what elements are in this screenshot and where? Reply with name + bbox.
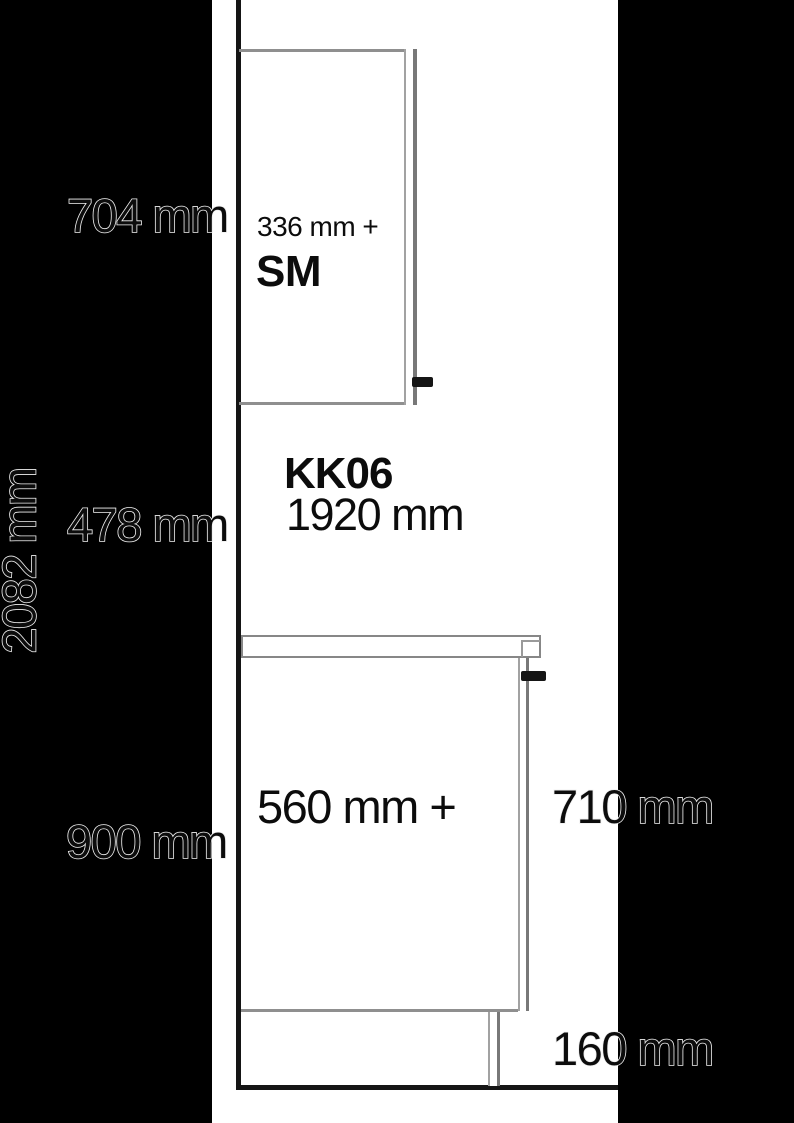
base-cabinet-bottom-edge bbox=[241, 1009, 518, 1012]
cabinet-dimension-diagram: 704 mm 478 mm 900 mm 2082 mm 336 mm + SM… bbox=[0, 0, 794, 1123]
total-height-label: 2082 mm bbox=[0, 468, 43, 653]
base-height-label: 710 mm bbox=[552, 783, 713, 830]
wall-cabinet-bottom-edge bbox=[239, 402, 409, 405]
plinth-height-label: 160 mm bbox=[552, 1025, 713, 1072]
mounting-height-label: 1920 mm bbox=[286, 492, 463, 537]
wall-cabinet-door bbox=[404, 49, 417, 405]
wall-cabinet-top-edge bbox=[239, 49, 416, 52]
wall-cabinet-depth-label: 336 mm + bbox=[257, 213, 378, 241]
worktop bbox=[241, 635, 541, 658]
wall-cabinet-handle bbox=[412, 377, 433, 387]
right-black-band bbox=[618, 0, 794, 1123]
worktop-front-edge bbox=[521, 640, 540, 657]
floor-line bbox=[236, 1085, 618, 1090]
worktop-height-label: 900 mm bbox=[66, 818, 227, 865]
wall-cabinet-height-label: 704 mm bbox=[67, 192, 228, 239]
base-depth-label: 560 mm + bbox=[257, 783, 455, 830]
base-cabinet-door bbox=[518, 658, 529, 1011]
plinth-panel bbox=[488, 1012, 500, 1086]
wall-line bbox=[236, 0, 241, 1089]
splashback-height-label: 478 mm bbox=[67, 501, 228, 548]
wall-cabinet-depth-suffix-label: SM bbox=[256, 250, 321, 294]
base-cabinet-handle bbox=[521, 671, 546, 681]
